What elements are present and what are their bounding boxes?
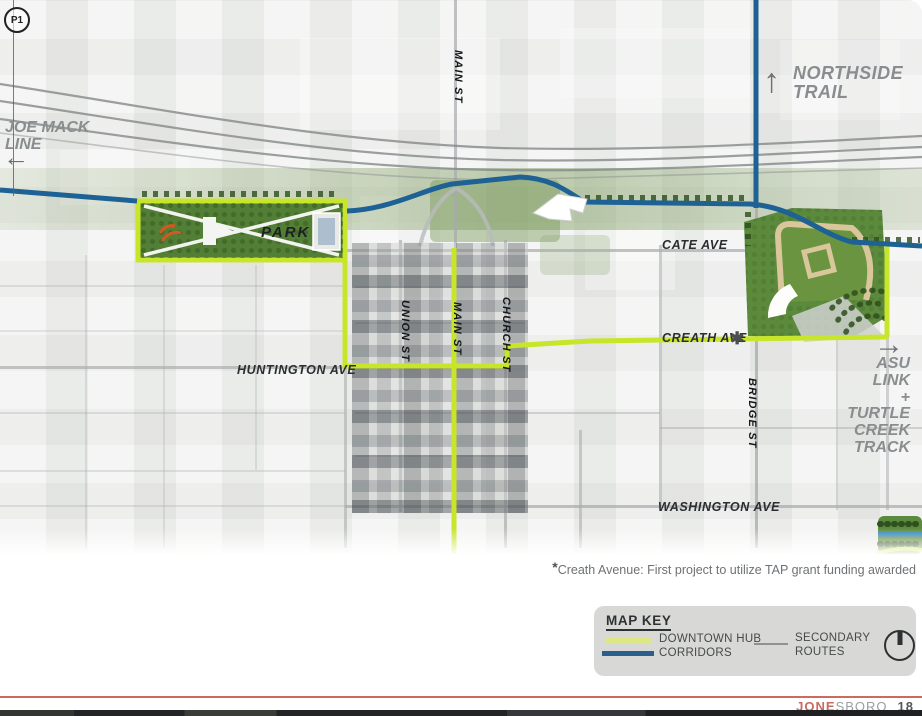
main-st-north-label: MAIN ST	[452, 50, 464, 104]
map-key: MAP KEY DOWNTOWN HUB CORRIDORS SECONDARY…	[594, 606, 916, 676]
union-st-label: UNION ST	[399, 300, 411, 362]
page: P1 JOE MACK LINE ← NORTHSIDE TRAIL ↑ MAI…	[0, 0, 922, 716]
routes-label: ROUTES	[795, 646, 845, 658]
church-st-label: CHURCH ST	[500, 297, 512, 373]
north-compass-icon	[884, 630, 915, 661]
p1-marker: P1	[4, 7, 30, 33]
downtown-hub-swatch	[606, 637, 652, 643]
arrow-up-icon: ↑	[763, 62, 780, 101]
next-page-image-edge	[0, 710, 922, 716]
downtown-hub-label: DOWNTOWN HUB	[659, 633, 761, 645]
huntington-ave-label: HUNTINGTON AVE	[237, 363, 356, 377]
map-bottom-fade	[0, 528, 922, 557]
cate-ave-label: CATE AVE	[662, 238, 728, 252]
arrow-left-icon: ←	[3, 142, 29, 173]
bridge-st-label: BRIDGE ST	[746, 378, 758, 449]
park-label: PARK	[261, 224, 310, 241]
downtown-hub-map: P1 JOE MACK LINE ← NORTHSIDE TRAIL ↑ MAI…	[0, 0, 922, 557]
washington-ave-label: WASHINGTON AVE	[658, 500, 780, 514]
creath-asterisk-icon: ✱	[730, 329, 744, 349]
map-key-title: MAP KEY	[606, 613, 671, 631]
corridor-swatch	[602, 651, 654, 656]
footer-rule	[0, 696, 922, 698]
corridors-label: CORRIDORS	[659, 647, 732, 659]
secondary-route-swatch	[754, 643, 788, 645]
northside-trail-label: NORTHSIDE TRAIL	[793, 64, 903, 102]
main-st-label: MAIN ST	[451, 302, 463, 356]
creath-footnote: *Creath Avenue: First project to utilize…	[552, 559, 916, 577]
secondary-label: SECONDARY	[795, 632, 870, 644]
white-arrow-annotation	[533, 194, 587, 221]
asu-link-label: ASU LINK + TURTLE CREEK TRACK	[847, 356, 910, 457]
